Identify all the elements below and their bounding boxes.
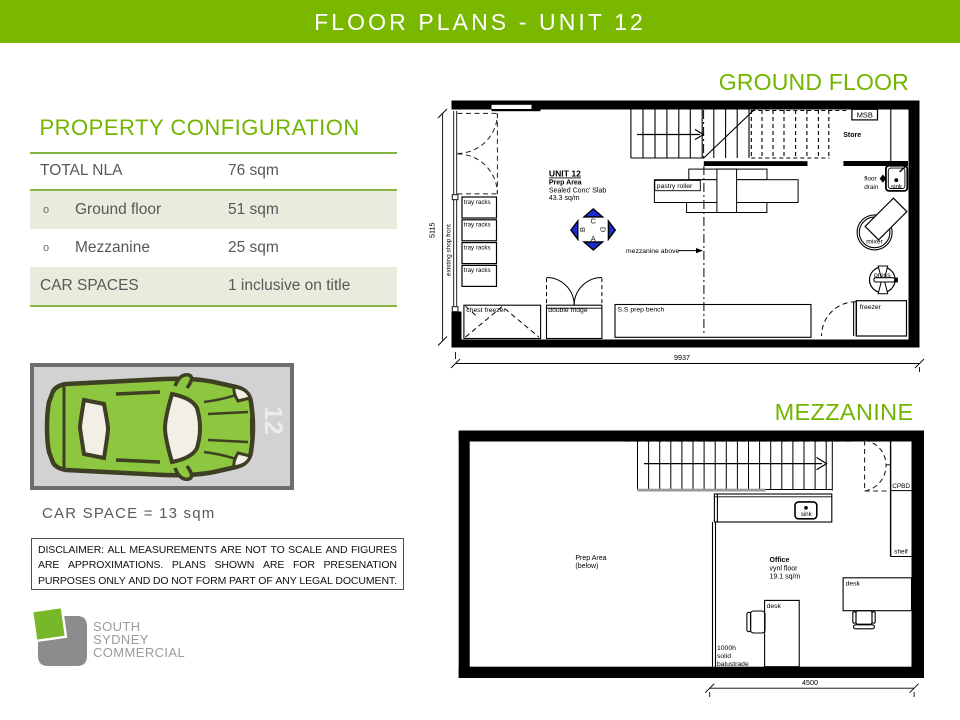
svg-text:chest freezer: chest freezer	[466, 307, 506, 314]
svg-text:C: C	[591, 217, 597, 226]
svg-text:floor: floor	[864, 175, 877, 182]
svg-text:tray racks: tray racks	[464, 267, 491, 274]
svg-text:tray racks: tray racks	[464, 199, 491, 206]
svg-text:desk: desk	[767, 603, 782, 610]
svg-text:Store: Store	[843, 132, 861, 139]
svg-text:Sealed Conc' Slab: Sealed Conc' Slab	[549, 187, 606, 194]
svg-text:balustrade: balustrade	[717, 661, 749, 668]
svg-text:19.1 sq/m: 19.1 sq/m	[770, 574, 801, 581]
svg-text:CPBD: CPBD	[892, 483, 910, 490]
svg-text:freezer: freezer	[860, 304, 882, 311]
svg-text:B: B	[578, 227, 587, 232]
svg-text:4500: 4500	[802, 678, 818, 687]
svg-text:1000h: 1000h	[717, 645, 736, 652]
svg-text:drain: drain	[864, 184, 879, 191]
svg-text:9937: 9937	[674, 353, 690, 362]
svg-text:Prep Area: Prep Area	[575, 555, 606, 562]
svg-text:MSB: MSB	[857, 110, 873, 119]
svg-text:Office: Office	[770, 557, 790, 564]
svg-text:mezzanine above: mezzanine above	[626, 248, 679, 255]
svg-text:sink: sink	[891, 183, 903, 190]
svg-text:D: D	[598, 227, 607, 233]
svg-text:Prep Area: Prep Area	[549, 180, 582, 187]
svg-text:mixer: mixer	[866, 239, 883, 246]
svg-text:solid: solid	[717, 653, 731, 660]
svg-text:tray racks: tray racks	[464, 244, 491, 251]
svg-text:existing shop front: existing shop front	[446, 224, 453, 276]
svg-text:UNIT 12: UNIT 12	[549, 169, 581, 179]
svg-text:pastry roller: pastry roller	[657, 183, 693, 190]
svg-text:shelf: shelf	[894, 549, 908, 556]
svg-text:S.S prep bench: S.S prep bench	[618, 306, 665, 313]
svg-text:desk: desk	[846, 580, 861, 587]
svg-text:(below): (below)	[575, 563, 598, 570]
svg-text:press: press	[874, 272, 891, 279]
svg-text:5115: 5115	[428, 222, 437, 237]
svg-text:vynl floor: vynl floor	[770, 565, 799, 572]
svg-text:sink: sink	[801, 511, 813, 518]
svg-text:double fridge: double fridge	[548, 307, 588, 314]
svg-text:43.3 sq/m: 43.3 sq/m	[549, 195, 580, 202]
svg-text:tray racks: tray racks	[464, 222, 491, 229]
